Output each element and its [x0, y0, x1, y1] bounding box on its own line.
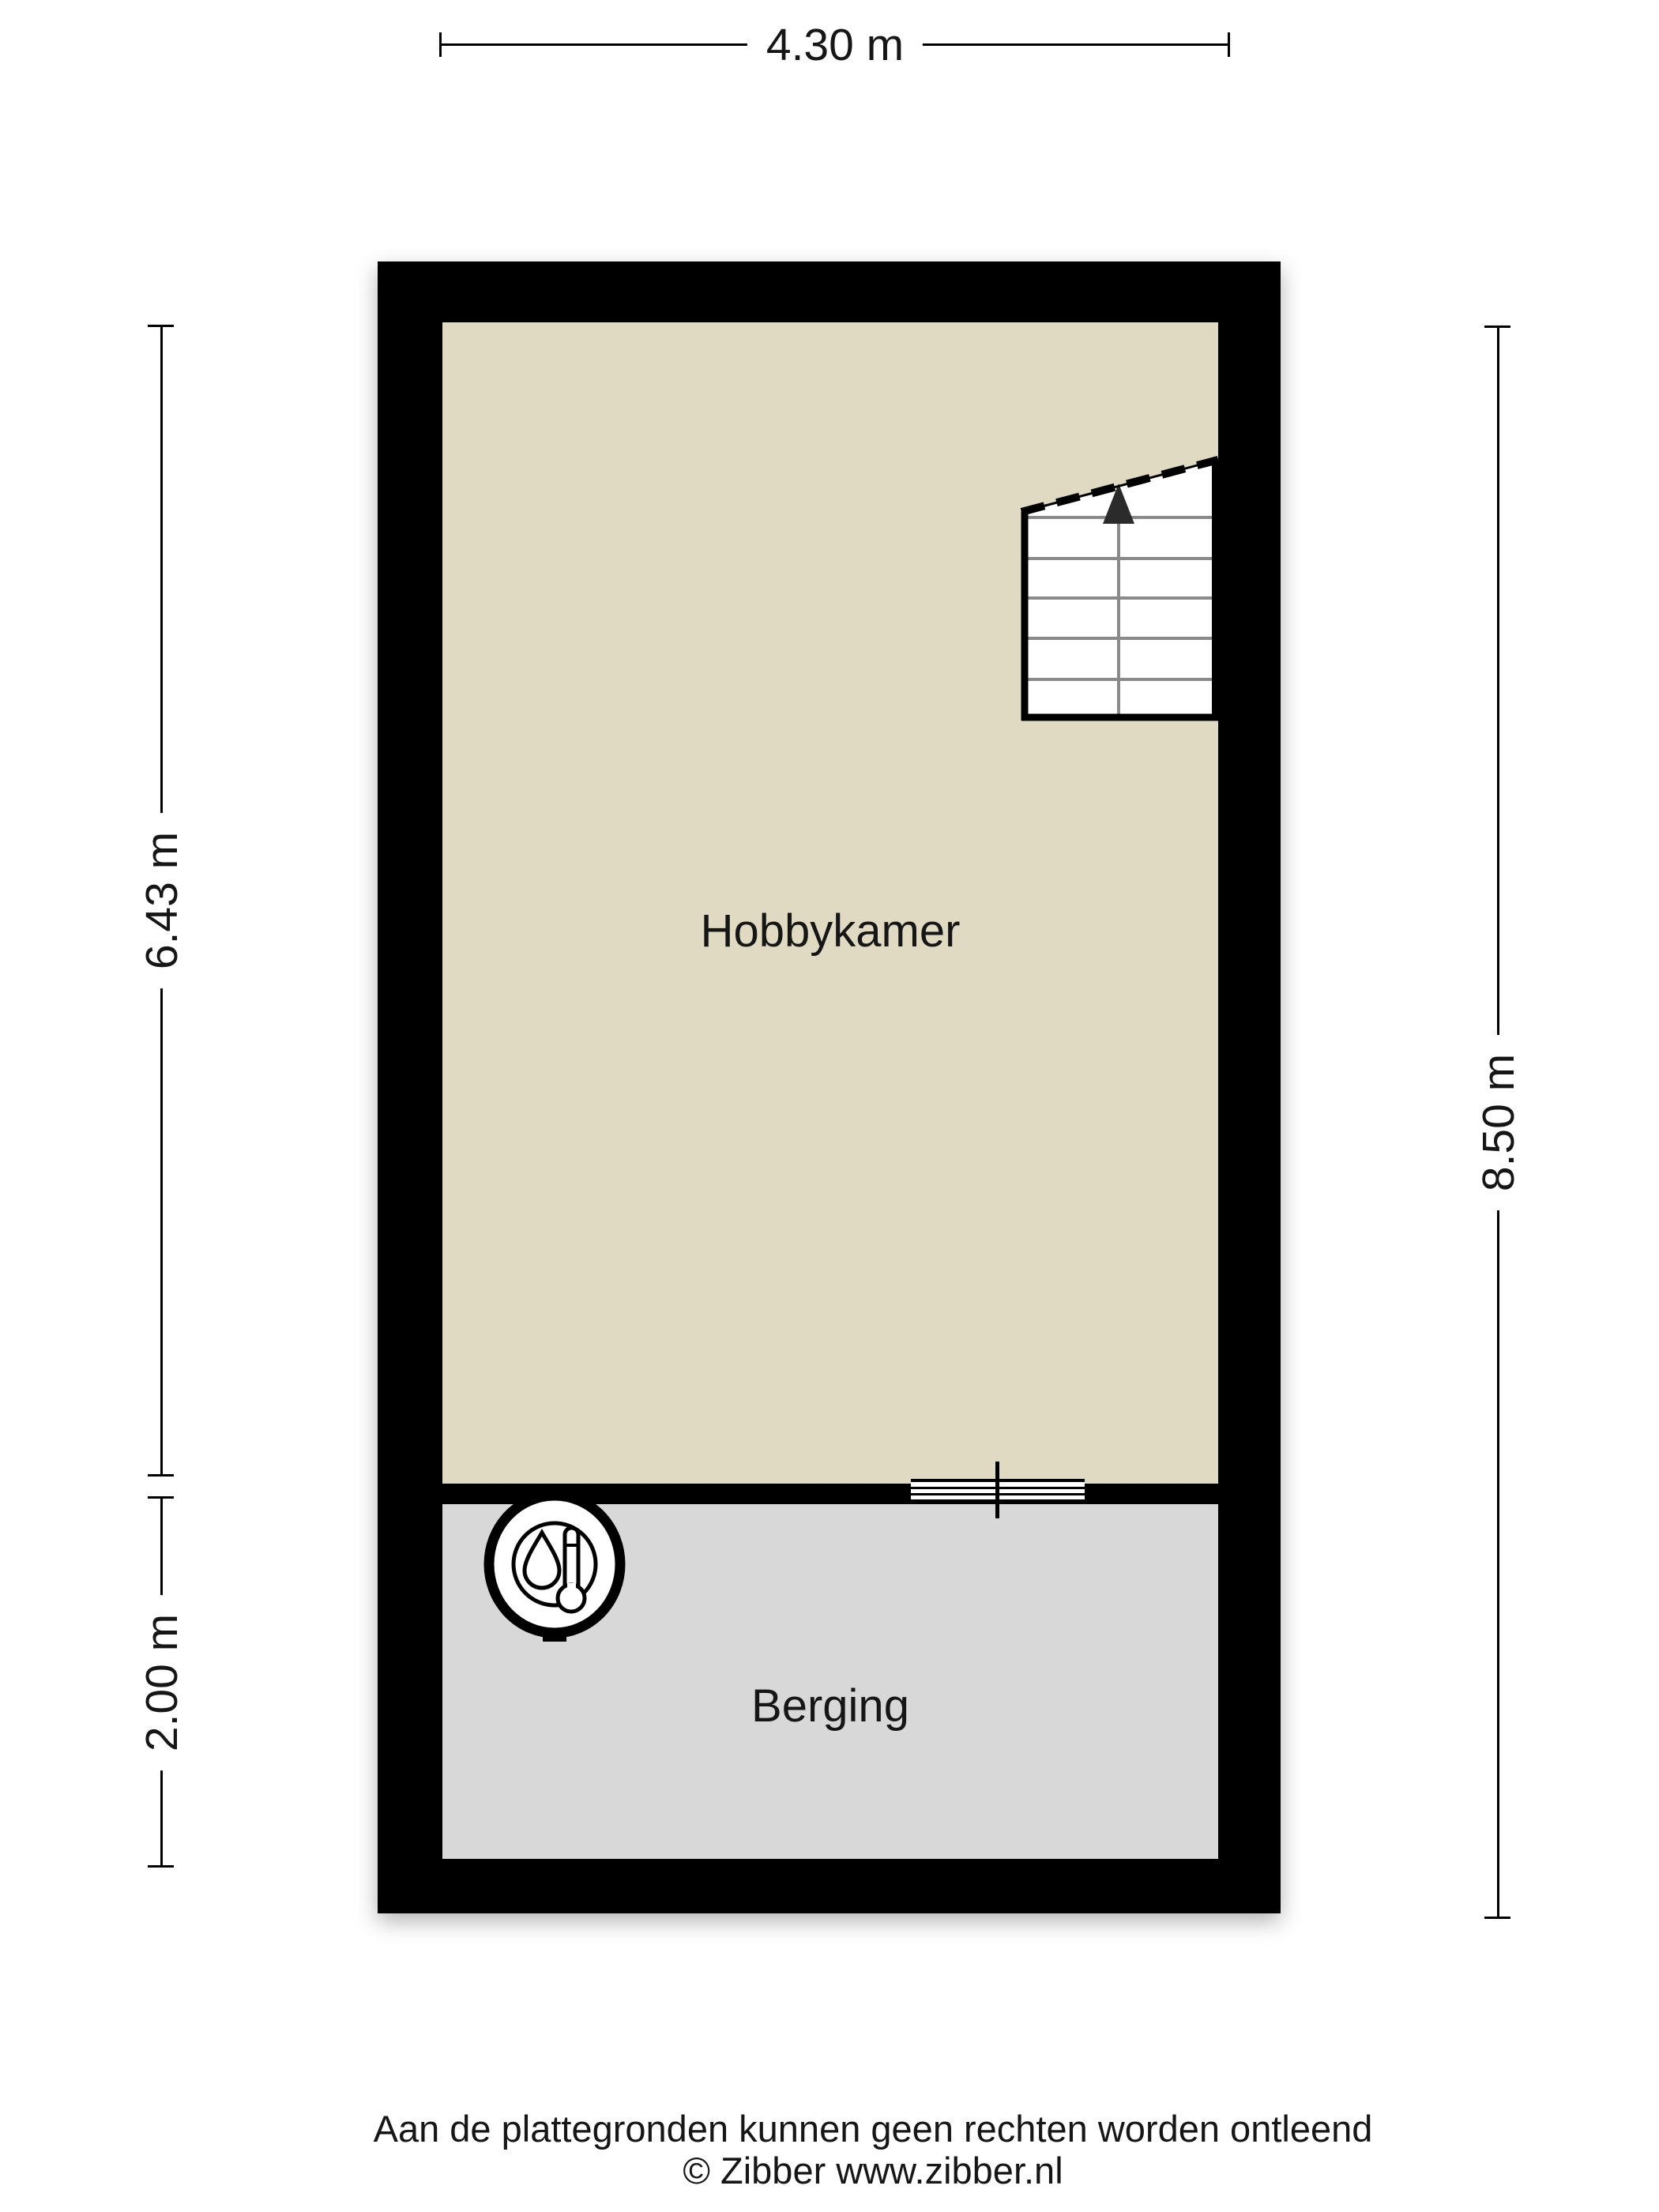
- dimension-right-tick-top: [1484, 325, 1510, 328]
- thermometer-joint: [567, 1583, 576, 1593]
- floorplan-page: 4.30 m 6.43 m 2.00 m 8.50 m Hobbykamer B…: [0, 0, 1659, 2212]
- dimension-left-upper-tick-bottom: [148, 1474, 174, 1477]
- room-berging-label: Berging: [442, 1682, 1218, 1731]
- dimension-left-upper-tick-top: [148, 325, 174, 327]
- footer-copyright: © Zibber www.zibber.nl: [374, 2150, 1373, 2191]
- dimension-left-upper-label: 6.43 m: [137, 813, 186, 988]
- dimension-right-label: 8.50 m: [1474, 1035, 1523, 1210]
- floorplan: Hobbykamer Berging: [378, 261, 1281, 1913]
- footer: Aan de plattegronden kunnen geen rechten…: [374, 2108, 1373, 2191]
- dimension-left-lower-tick-bottom: [148, 1865, 174, 1868]
- room-hobbykamer-label: Hobbykamer: [442, 907, 1218, 956]
- dimension-top-tick-right: [1228, 32, 1230, 57]
- dimension-left-lower-tick-top: [148, 1496, 174, 1499]
- stairs: [1021, 460, 1218, 722]
- dimension-top-label: 4.30 m: [747, 21, 923, 70]
- door-symbol-post: [995, 1461, 999, 1518]
- dimension-left-lower-label: 2.00 m: [137, 1595, 186, 1770]
- dimension-top-tick-left: [439, 32, 442, 57]
- boiler-icon: [483, 1488, 626, 1643]
- footer-disclaimer: Aan de plattegronden kunnen geen rechten…: [374, 2108, 1373, 2150]
- dimension-right-tick-bottom: [1484, 1917, 1510, 1919]
